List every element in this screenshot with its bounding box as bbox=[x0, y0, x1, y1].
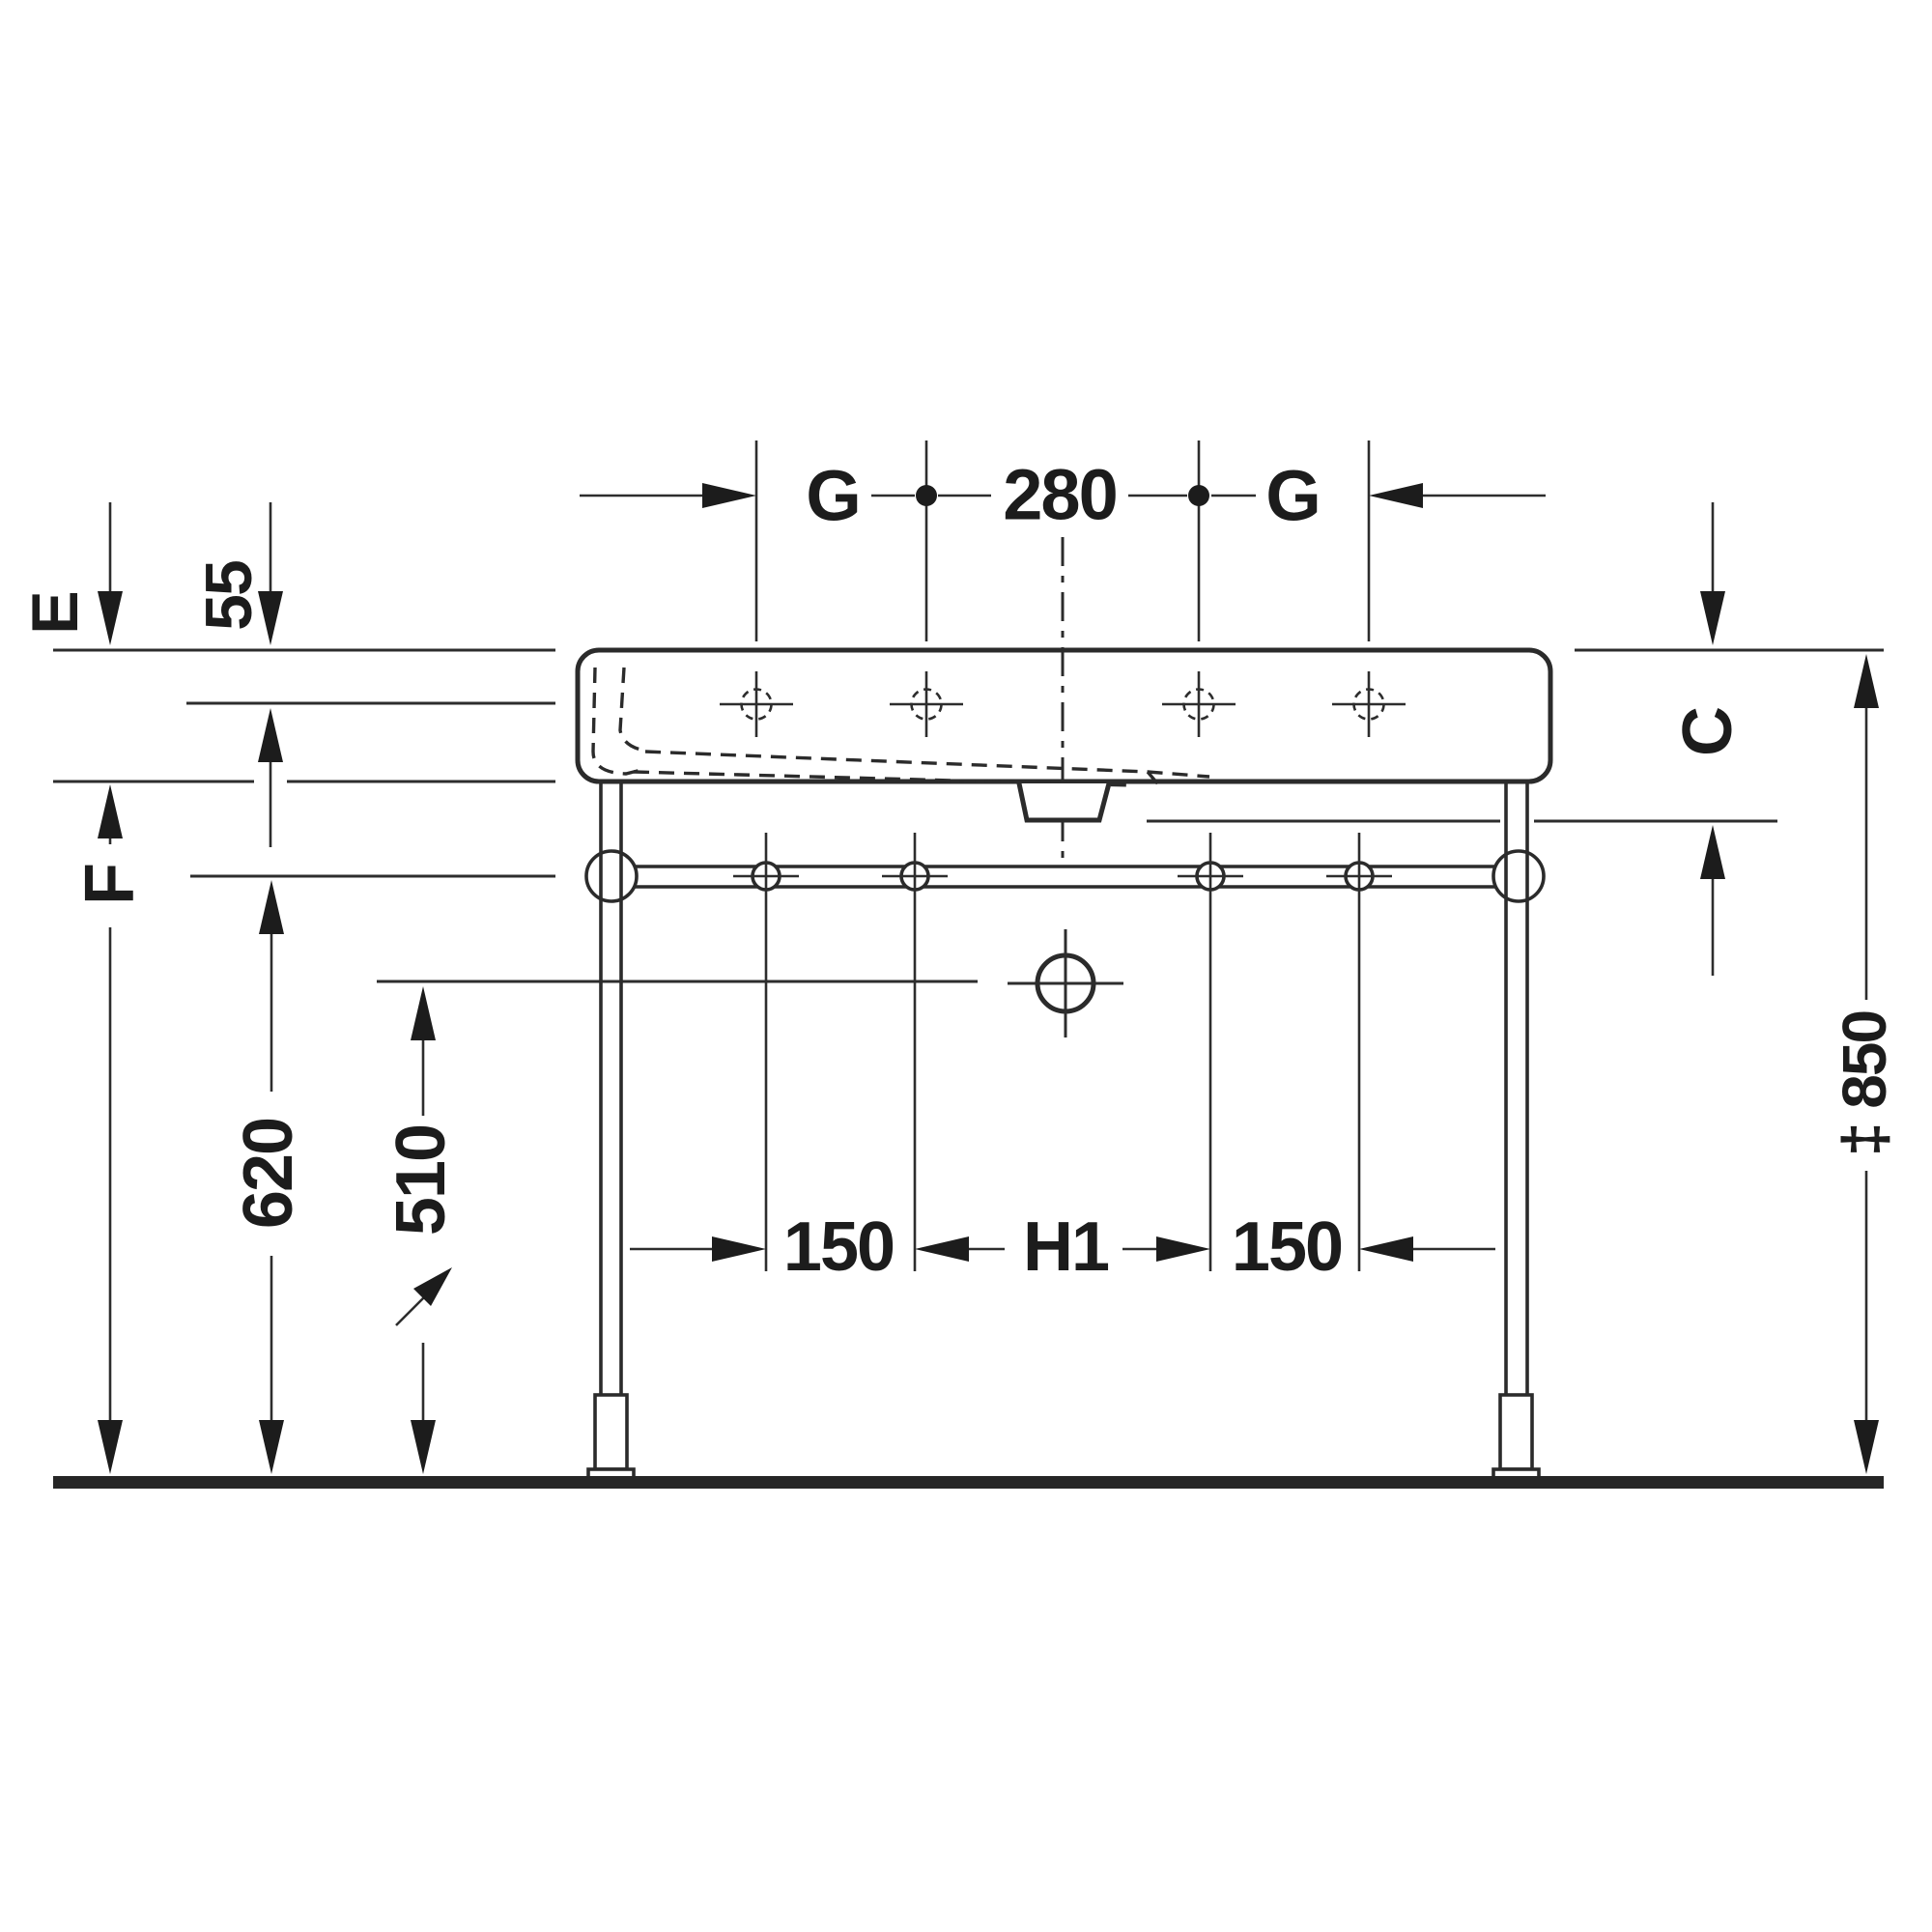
dimension-850: ‡ 850 bbox=[1830, 654, 1899, 1474]
dimension-bottom-row: 150 H1 150 bbox=[630, 1208, 1495, 1286]
arrowhead-left bbox=[1369, 483, 1423, 508]
rail-fixing-points bbox=[733, 833, 1392, 1271]
console-stand bbox=[586, 783, 1544, 1478]
rail-joint-right bbox=[1493, 851, 1544, 901]
dim-label-850: ‡ 850 bbox=[1830, 1011, 1899, 1156]
dim-label-510: 510 bbox=[383, 1125, 460, 1236]
adjust-arrow-shaft bbox=[396, 1296, 425, 1325]
dim-label-280: 280 bbox=[1003, 455, 1116, 535]
dim-label-620: 620 bbox=[230, 1119, 307, 1229]
dimension-f: F bbox=[71, 784, 149, 1474]
dim-label-150-left: 150 bbox=[783, 1208, 894, 1286]
technical-drawing-page: G 280 G E 55 F 620 510 bbox=[0, 0, 1932, 1932]
dimension-e: E bbox=[18, 502, 123, 645]
dim-label-g-right: G bbox=[1265, 456, 1320, 536]
dim-label-h1: H1 bbox=[1023, 1208, 1109, 1286]
dim-label-c: C bbox=[1669, 707, 1747, 756]
dim-label-150-right: 150 bbox=[1232, 1208, 1342, 1286]
dim-label-g-left: G bbox=[806, 456, 860, 536]
floor-line bbox=[53, 1476, 1884, 1489]
adjust-arrow-head bbox=[413, 1267, 452, 1306]
arrowhead-right bbox=[702, 483, 756, 508]
dimension-55: 55 bbox=[192, 502, 283, 847]
rail-joint-left bbox=[586, 851, 637, 901]
dimension-510: 510 bbox=[383, 986, 460, 1474]
dim-label-55: 55 bbox=[192, 561, 266, 631]
dim-label-f: F bbox=[71, 865, 149, 905]
washbasin-dimension-diagram: G 280 G E 55 F 620 510 bbox=[0, 0, 1932, 1932]
trap-connection bbox=[1008, 929, 1123, 1037]
dim-label-e: E bbox=[18, 592, 92, 634]
drain-outlet-stub bbox=[1019, 783, 1109, 820]
dim-dot-left bbox=[916, 485, 937, 506]
dim-dot-right bbox=[1188, 485, 1209, 506]
dimension-c: C bbox=[1669, 502, 1747, 976]
washbasin bbox=[578, 537, 1550, 862]
dimension-620: 620 bbox=[230, 880, 307, 1474]
